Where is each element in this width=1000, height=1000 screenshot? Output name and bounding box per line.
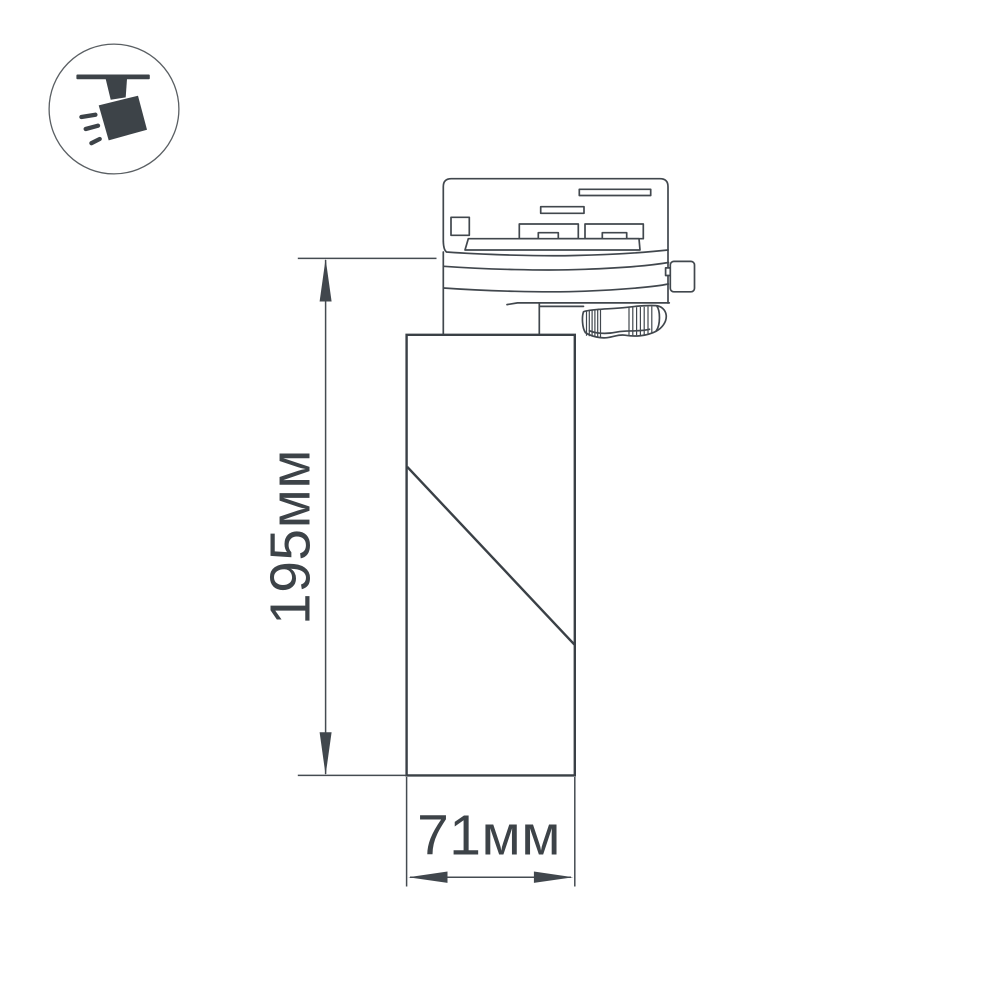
side-latch [670,261,694,291]
arrow-left-icon [408,872,447,883]
adapter-collar-band-1 [443,242,668,256]
locking-knob [582,306,666,338]
adapter-yoke-ledge [507,303,669,305]
arrow-down-icon [320,732,332,775]
product-dimension-diagram: 195мм 71мм [0,0,1000,1000]
body-diagonal-seam [407,467,574,645]
adapter-contact-strip-mid [541,207,584,214]
arrow-up-icon [320,259,332,302]
adapter-collar-band-3 [444,284,669,292]
adapter-contact-square [451,217,469,235]
arrow-right-icon [534,872,573,883]
fixture-body [407,335,575,776]
width-dimension-label: 71мм [417,808,561,865]
height-dimension-label: 195мм [263,449,320,625]
adapter-contact-strip-long [579,189,650,195]
knob-knurling-right [629,306,652,335]
adapter-collar-band-2 [444,263,669,270]
adapter-contact-tab-right [585,224,643,239]
track-adapter [443,179,694,338]
adapter-contact-tab-left [519,224,578,239]
adapter-base-plate [465,239,640,250]
